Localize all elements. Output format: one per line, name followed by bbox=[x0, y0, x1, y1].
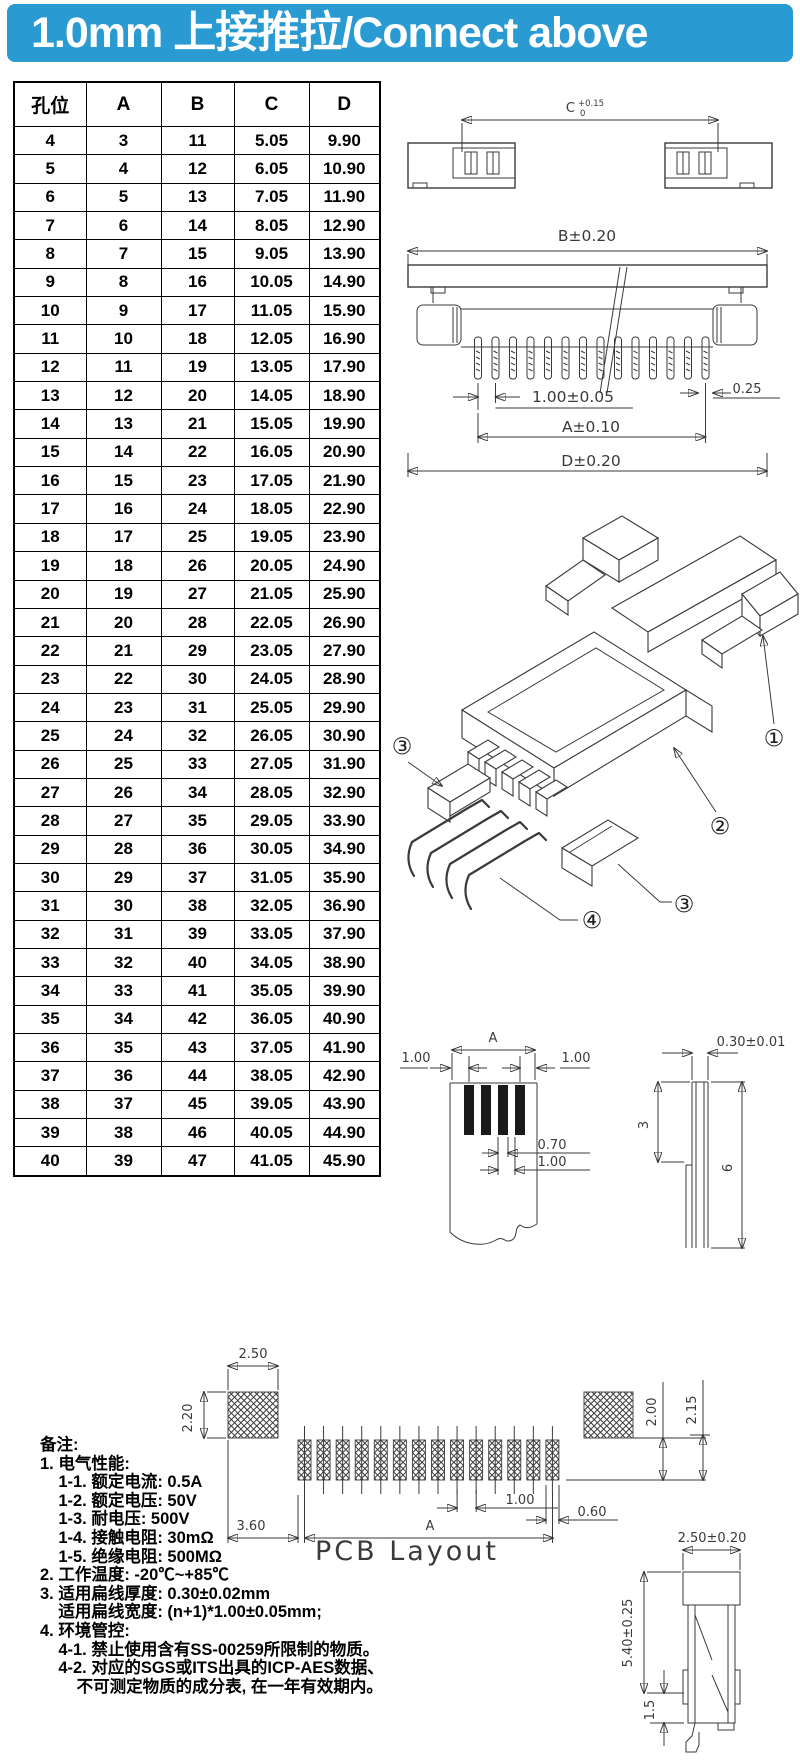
ffc-total-label: 6 bbox=[721, 1164, 736, 1172]
conductor bbox=[498, 1085, 508, 1135]
pcb-pad-height-label: 2.20 bbox=[181, 1404, 196, 1433]
conductor bbox=[481, 1085, 491, 1135]
dim-c-label: C bbox=[566, 101, 575, 116]
smt-lead bbox=[686, 1723, 699, 1752]
ffc-side-drawing: 0.30±0.01 3 6 bbox=[637, 1035, 785, 1248]
ffc-pitch-label: 1.00 bbox=[538, 1155, 567, 1170]
side-latch-left bbox=[417, 305, 461, 345]
part-3b-label: ③ bbox=[674, 892, 695, 918]
pcb-h1-label: 2.00 bbox=[645, 1398, 660, 1427]
signal-pads bbox=[298, 1426, 559, 1494]
ffc-cable-body bbox=[450, 1083, 537, 1244]
ffc-conductor-width-label: 0.70 bbox=[538, 1138, 567, 1153]
side-height-label: 5.40±0.25 bbox=[621, 1599, 636, 1668]
dim-c-tol-up: +0.15 bbox=[578, 99, 604, 109]
dim-pitch-label: 1.00±0.05 bbox=[532, 388, 614, 406]
front-view-drawing: B±0.20 1.00±0.05 0.25 bbox=[408, 227, 780, 477]
pcb-layout-drawing: 2.50 2.20 2.00 2.15 3.60 A bbox=[181, 1347, 710, 1567]
metal-fitting-bottom bbox=[562, 820, 638, 886]
pcb-layout-label: PCB Layout bbox=[315, 1536, 499, 1567]
ffc-exposed-label: 3 bbox=[637, 1121, 652, 1129]
ffc-front-drawing: A 1.00 1.00 bbox=[400, 1031, 590, 1244]
ffc-thickness-label: 0.30±0.01 bbox=[717, 1035, 786, 1050]
part-1-label: ① bbox=[764, 726, 785, 752]
connector-side-drawing: 2.50±0.20 5.40±0.25 1.5 bbox=[621, 1531, 746, 1752]
dim-pin-width-label: 0.25 bbox=[733, 382, 762, 397]
exploded-view-drawing: ① ② bbox=[392, 516, 798, 934]
part-2-label: ② bbox=[710, 814, 731, 840]
pcb-edge-label: 3.60 bbox=[237, 1519, 266, 1534]
dim-d-label: D±0.20 bbox=[561, 452, 620, 470]
ffc-dim-a-label: A bbox=[489, 1031, 498, 1046]
pcb-h2-label: 2.15 bbox=[685, 1396, 700, 1425]
conductor bbox=[515, 1085, 525, 1135]
side-width-label: 2.50±0.20 bbox=[678, 1531, 747, 1546]
anchor-pad-right bbox=[584, 1392, 633, 1438]
side-lead-label: 1.5 bbox=[643, 1700, 658, 1721]
datasheet-page: 1.0mm 上接推拉/Connect above 孔位ABCD 43115.05… bbox=[0, 0, 800, 1764]
dim-a-label: A±0.10 bbox=[562, 418, 620, 436]
connector-profile bbox=[683, 1572, 740, 1752]
contact-pins bbox=[475, 337, 710, 379]
pcb-a-label: A bbox=[426, 1519, 435, 1534]
pcb-pad-width-label: 2.50 bbox=[239, 1347, 268, 1362]
ffc-side-strip bbox=[686, 1082, 708, 1248]
drawings-canvas: C +0.15 0 B±0.20 bbox=[0, 0, 800, 1764]
terminals-part bbox=[408, 800, 546, 909]
dim-c-tol-dn: 0 bbox=[580, 109, 585, 119]
pcb-last-width-label: 0.60 bbox=[578, 1505, 607, 1520]
part-3a-label: ③ bbox=[392, 734, 413, 760]
conductor bbox=[464, 1085, 474, 1135]
pcb-pitch-label: 1.00 bbox=[506, 1493, 535, 1508]
dim-b-label: B±0.20 bbox=[558, 227, 616, 245]
connector-body-top bbox=[408, 265, 767, 287]
anchor-pad-left bbox=[228, 1392, 278, 1438]
top-view-drawing: C +0.15 0 bbox=[408, 99, 772, 188]
part-4-label: ④ bbox=[582, 908, 603, 934]
housing-part bbox=[462, 632, 712, 816]
ffc-margin-left-label: 1.00 bbox=[402, 1051, 431, 1066]
ffc-margin-right-label: 1.00 bbox=[562, 1051, 591, 1066]
side-latch-right bbox=[713, 305, 757, 345]
